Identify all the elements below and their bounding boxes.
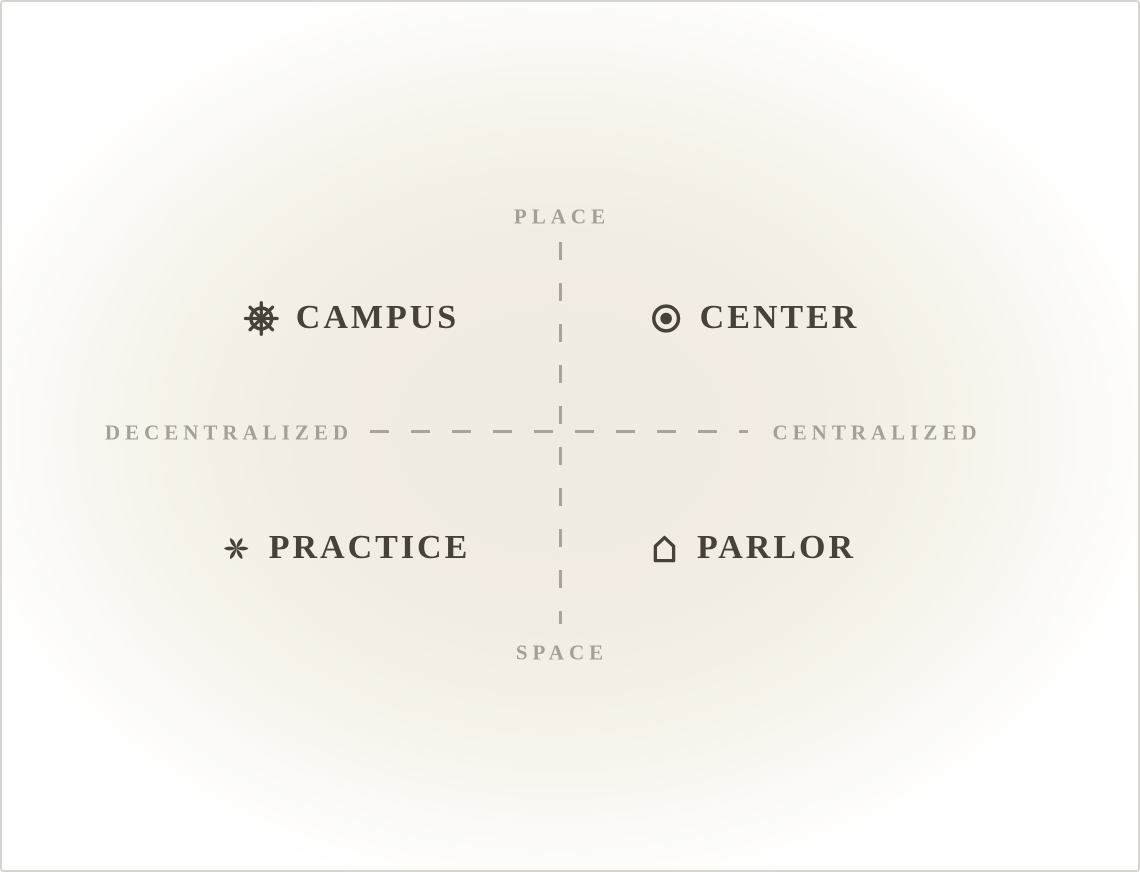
quadrant-diagram: PLACE SPACE DECENTRALIZED CENTRALIZED bbox=[0, 0, 1140, 872]
quadrant-label-campus: CAMPUS bbox=[296, 299, 459, 337]
axis-label-right: CENTRALIZED bbox=[772, 421, 981, 446]
quadrant-item-campus[interactable]: CAMPUS bbox=[243, 299, 459, 337]
ship-wheel-icon bbox=[243, 300, 280, 337]
quadrant-item-practice[interactable]: PRACTICE bbox=[220, 529, 471, 567]
house-icon bbox=[648, 531, 681, 565]
quadrant-item-parlor[interactable]: PARLOR bbox=[648, 529, 856, 567]
fisheye-icon bbox=[649, 301, 684, 336]
quadrant-label-center: CENTER bbox=[700, 299, 860, 337]
quadrant-label-parlor: PARLOR bbox=[697, 529, 856, 567]
vertical-axis-line bbox=[559, 242, 562, 624]
axis-label-top: PLACE bbox=[514, 205, 610, 230]
quadrant-item-center[interactable]: CENTER bbox=[649, 299, 860, 337]
axis-label-left: DECENTRALIZED bbox=[105, 421, 353, 446]
horizontal-axis-line bbox=[370, 430, 748, 433]
axis-label-bottom: SPACE bbox=[516, 641, 608, 666]
asterisk-icon bbox=[220, 532, 253, 565]
quadrant-label-practice: PRACTICE bbox=[269, 529, 471, 567]
